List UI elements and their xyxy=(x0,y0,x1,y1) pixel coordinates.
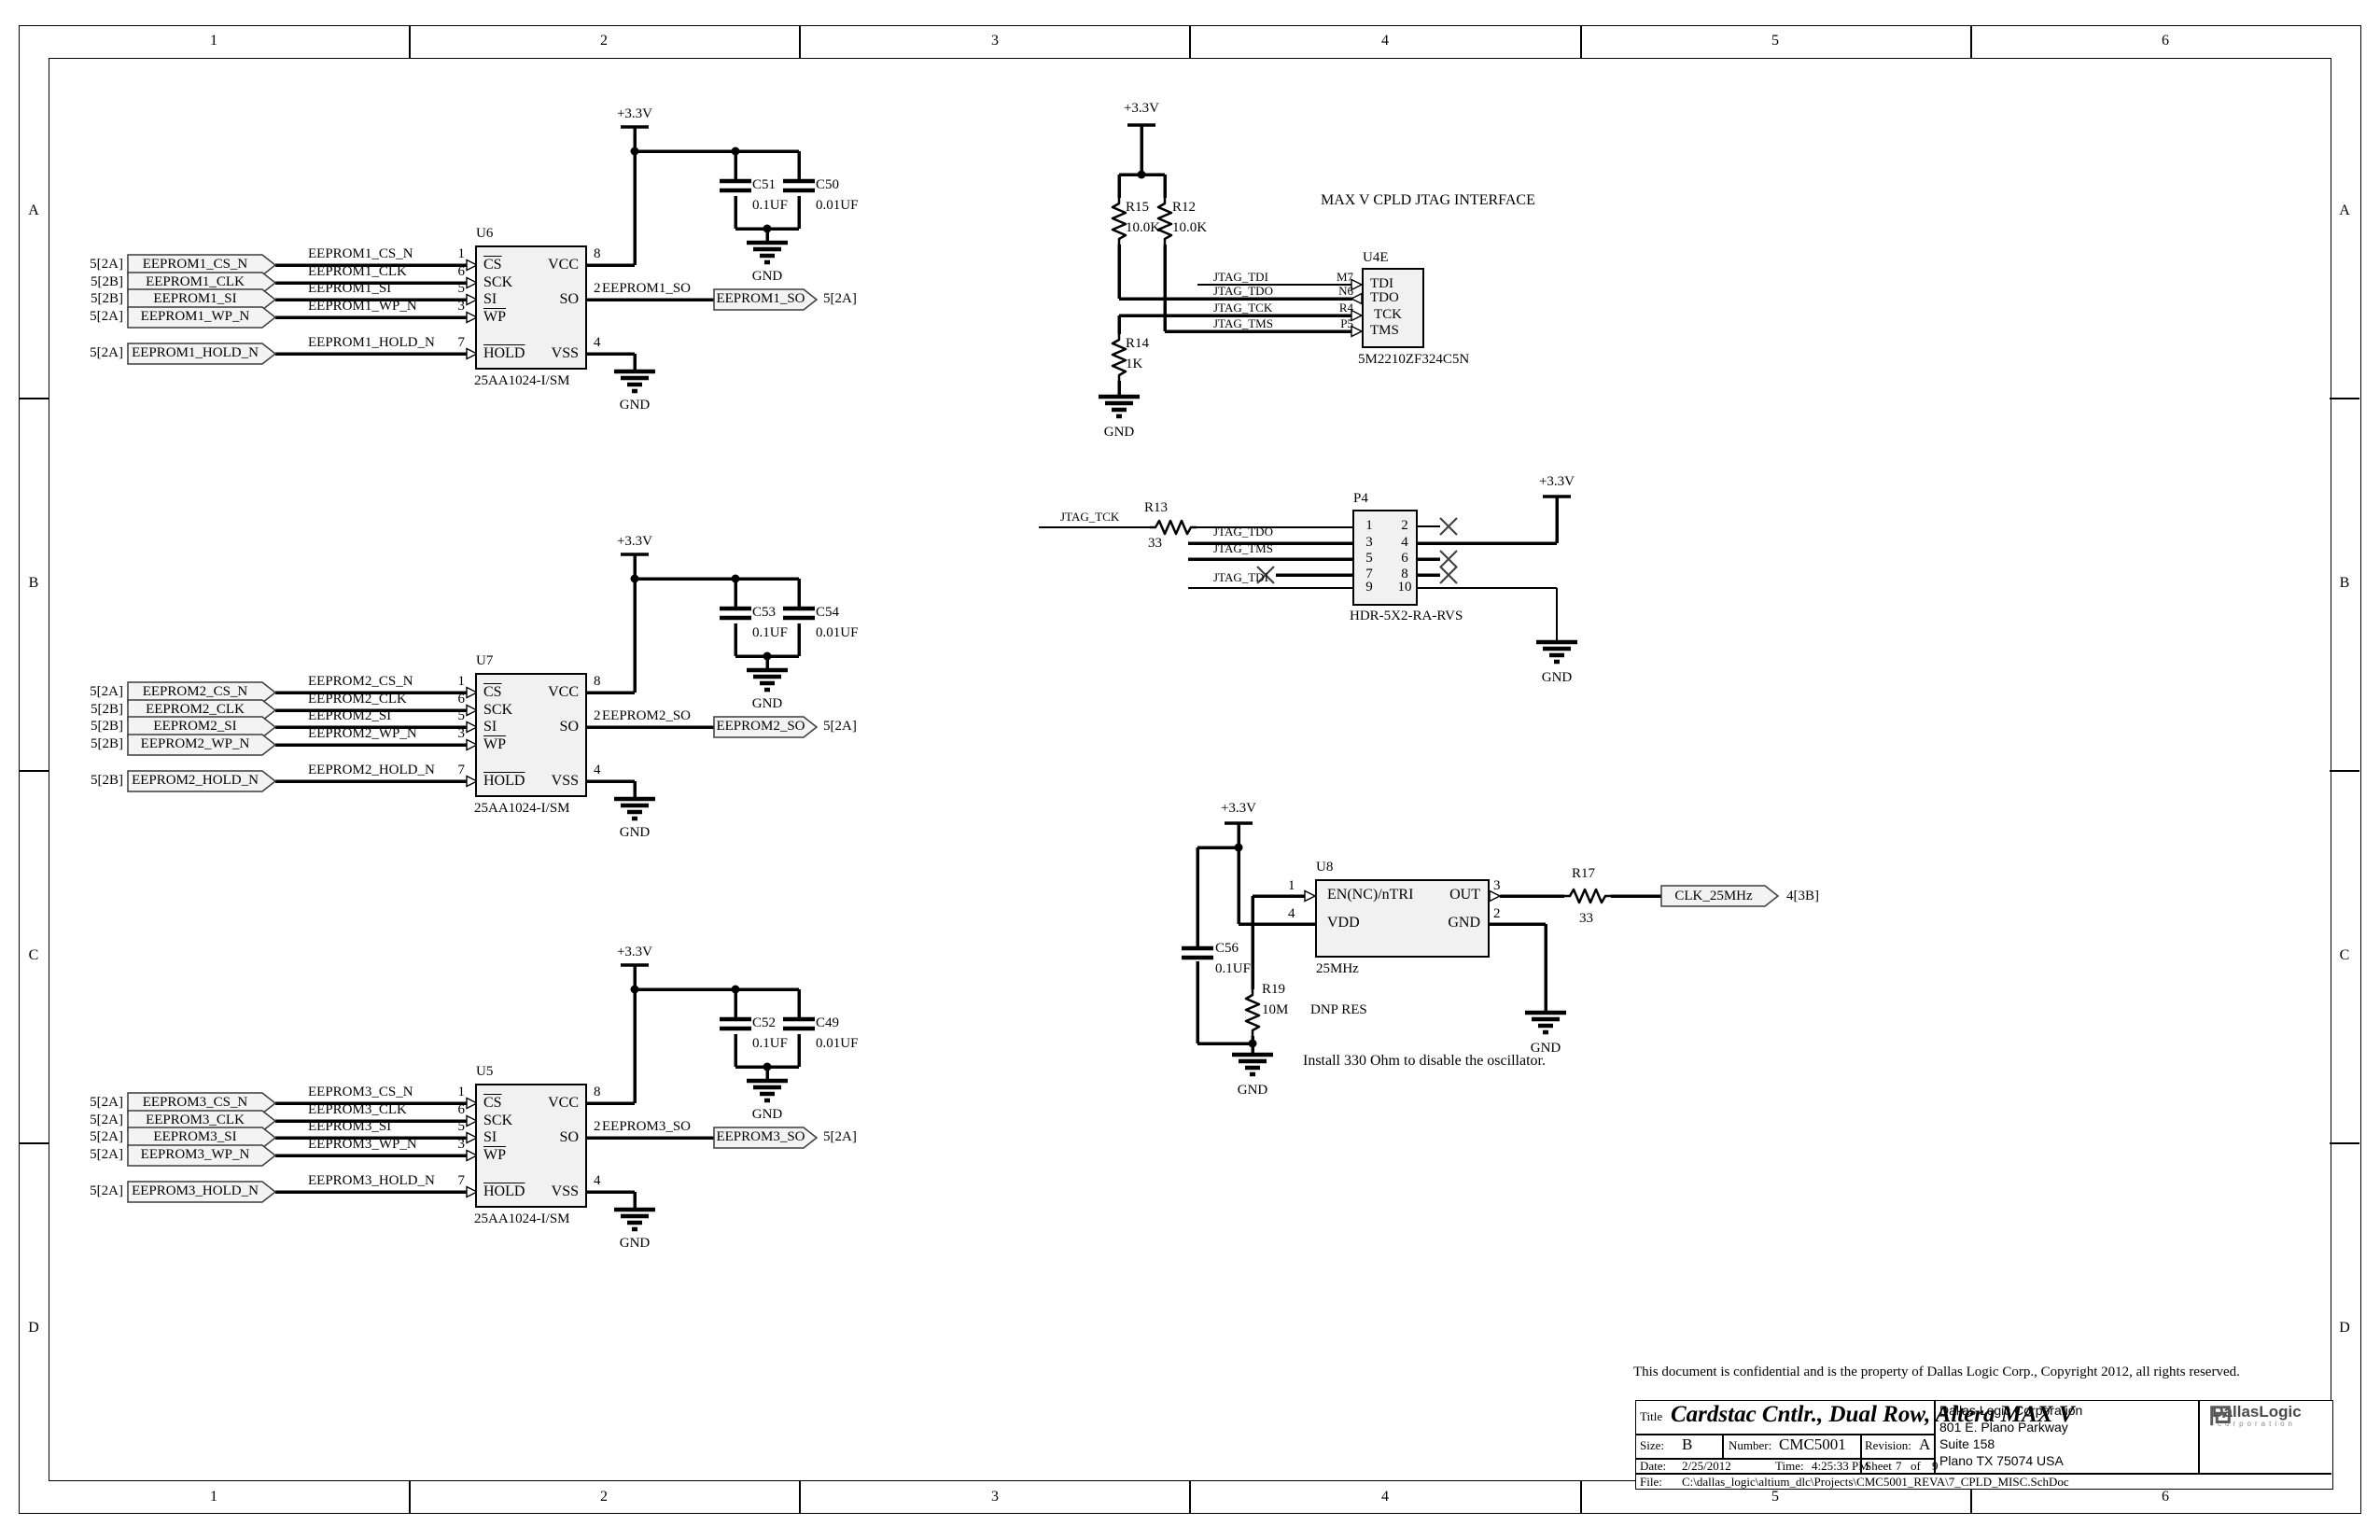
pin-number: 8 xyxy=(594,674,601,690)
port-label[interactable]: EEPROM3_SI xyxy=(130,1129,260,1145)
pin-number: 2 xyxy=(1493,906,1501,922)
pin-name: GND xyxy=(1432,915,1480,931)
pin-number: 3 xyxy=(439,299,465,315)
part-number: 25MHz xyxy=(1316,961,1359,977)
pin-number: 9 xyxy=(1359,580,1379,595)
pin-name: CS xyxy=(483,684,502,701)
net-label: JTAG_TDO xyxy=(1213,525,1273,539)
revision-value: A xyxy=(1919,1435,1930,1453)
pin-number: 6 xyxy=(439,1102,465,1118)
pin-number: P5 xyxy=(1314,316,1353,330)
designator: U4E xyxy=(1363,250,1389,266)
port-ref: 5[2A] xyxy=(823,1129,857,1145)
pin-name: WP xyxy=(483,736,506,753)
res-value: 10M xyxy=(1262,1002,1288,1018)
border-row-label: D xyxy=(19,1320,49,1337)
pin-name: TDO xyxy=(1370,290,1399,306)
port-label[interactable]: EEPROM3_CLK xyxy=(130,1113,260,1128)
dnp-note: DNP RES xyxy=(1310,1002,1367,1018)
net-label: EEPROM1_HOLD_N xyxy=(308,335,435,351)
pin-number: 8 xyxy=(594,246,601,262)
net-label: EEPROM2_CS_N xyxy=(308,674,413,690)
pin-name: VSS xyxy=(530,345,579,362)
border-tick xyxy=(19,1142,49,1144)
res-ref: R13 xyxy=(1144,500,1168,516)
pin-name: HOLD xyxy=(483,773,525,790)
cap-ref: C54 xyxy=(816,605,839,621)
port-label[interactable]: EEPROM2_HOLD_N xyxy=(130,773,260,789)
res-ref: R17 xyxy=(1572,866,1595,882)
border-row-label: D xyxy=(2330,1320,2359,1337)
time-value: 4:25:33 PM xyxy=(1812,1459,1869,1473)
gnd-label: GND xyxy=(739,269,795,285)
pin-number: 5 xyxy=(439,281,465,297)
net-label: JTAG_TMS xyxy=(1213,541,1273,555)
net-label: EEPROM2_WP_N xyxy=(308,726,417,742)
port-label[interactable]: EEPROM1_CLK xyxy=(130,274,260,290)
pin-name: SI xyxy=(483,719,497,735)
border-col-label: 3 xyxy=(800,1489,1190,1505)
pin-name: CS xyxy=(483,257,502,273)
pin-name: VSS xyxy=(530,1183,579,1200)
pin-number: 8 xyxy=(594,1085,601,1100)
power-label: +3.3V xyxy=(607,945,663,960)
designator: U8 xyxy=(1316,860,1333,875)
pin-name: SCK xyxy=(483,1113,512,1129)
pin-number: 7 xyxy=(439,763,465,778)
number-value: CMC5001 xyxy=(1779,1435,1846,1453)
designator: P4 xyxy=(1353,491,1368,507)
border-row-label: A xyxy=(2330,203,2359,219)
company-address: Suite 158 xyxy=(1939,1436,1995,1451)
designator: U5 xyxy=(476,1064,493,1080)
net-label: EEPROM3_HOLD_N xyxy=(308,1173,435,1189)
oscillator-note: Install 330 Ohm to disable the oscillato… xyxy=(1303,1053,1546,1070)
gnd-label: GND xyxy=(739,696,795,712)
pin-number: 2 xyxy=(594,281,601,297)
port-label[interactable]: EEPROM2_SO xyxy=(716,719,805,735)
pin-number: 5 xyxy=(439,708,465,724)
pin-number: 4 xyxy=(1288,906,1295,922)
copyright-text: This document is confidential and is the… xyxy=(1633,1365,2240,1380)
port-label[interactable]: CLK_25MHz xyxy=(1663,889,1764,904)
net-label: EEPROM1_WP_N xyxy=(308,299,417,315)
res-value: 33 xyxy=(1148,536,1162,552)
port-label[interactable]: EEPROM3_WP_N xyxy=(130,1147,260,1163)
border-col-label: 5 xyxy=(1580,1489,1970,1505)
pin-name: VSS xyxy=(530,773,579,790)
gnd-label: GND xyxy=(739,1107,795,1123)
number-label: Number: xyxy=(1729,1438,1771,1452)
border-tick xyxy=(2330,1142,2359,1144)
port-label[interactable]: EEPROM1_WP_N xyxy=(130,309,260,325)
company-address: 801 E. Plano Parkway xyxy=(1939,1420,2068,1435)
pin-number: 6 xyxy=(439,264,465,280)
port-ref: 5[2A] xyxy=(86,345,123,361)
border-col-label: 3 xyxy=(800,33,1190,49)
border-tick xyxy=(19,770,49,772)
title-block-line xyxy=(1722,1434,1724,1458)
title-label: Title xyxy=(1640,1409,1662,1423)
gnd-label: GND xyxy=(607,1236,663,1252)
pin-number: 3 xyxy=(439,1137,465,1153)
company-name: Dallas Logic Corporation xyxy=(1939,1403,2082,1418)
schematic-sheet: 1 2 3 4 5 6 1 2 3 4 5 6 A B C D A B C D … xyxy=(0,0,2380,1540)
border-row-label: C xyxy=(19,947,49,964)
net-label: EEPROM1_SI xyxy=(308,281,391,297)
border-col-label: 4 xyxy=(1190,33,1580,49)
sheet-of: of xyxy=(1911,1459,1921,1473)
section-title: MAX V CPLD JTAG INTERFACE xyxy=(1321,192,1535,209)
cap-value: 0.1UF xyxy=(752,198,788,214)
port-ref: 5[2B] xyxy=(86,736,123,752)
port-label[interactable]: EEPROM3_CS_N xyxy=(130,1095,260,1111)
pin-number: 2 xyxy=(594,708,601,724)
pin-name: SO xyxy=(530,719,579,735)
pin-name: WP xyxy=(483,1147,506,1164)
file-path: C:\dallas_logic\altium_dlc\Projects\CMC5… xyxy=(1682,1475,2069,1489)
port-label[interactable]: EEPROM2_SI xyxy=(130,719,260,735)
pin-number: 4 xyxy=(594,763,601,778)
pin-number: 5 xyxy=(439,1119,465,1135)
pin-number: 1 xyxy=(439,246,465,262)
cap-ref: C53 xyxy=(752,605,776,621)
pin-number: 7 xyxy=(439,335,465,351)
power-label: +3.3V xyxy=(1113,101,1169,117)
pin-number: 1 xyxy=(1288,878,1295,894)
gnd-label: GND xyxy=(1225,1083,1281,1099)
sheet-total: 9 xyxy=(1932,1459,1939,1473)
pin-name: SCK xyxy=(483,274,512,291)
port-ref: 5[2B] xyxy=(86,291,123,307)
port-label[interactable]: EEPROM3_SO xyxy=(716,1129,805,1145)
pin-number: 10 xyxy=(1393,580,1417,595)
res-value: 33 xyxy=(1579,911,1593,927)
res-ref: R12 xyxy=(1172,200,1196,216)
pin-number: R4 xyxy=(1314,301,1353,315)
time-label: Time: xyxy=(1775,1459,1804,1473)
date-value: 2/25/2012 xyxy=(1682,1459,1731,1473)
res-value: 10.0K xyxy=(1172,220,1207,236)
pin-name: VCC xyxy=(530,684,579,701)
size-label: Size: xyxy=(1640,1438,1664,1452)
pin-name: VCC xyxy=(530,257,579,273)
res-ref: R19 xyxy=(1262,982,1285,998)
port-ref: 5[2A] xyxy=(823,291,857,307)
pin-number: 3 xyxy=(1493,878,1501,894)
border-col-label: 6 xyxy=(1970,33,2360,49)
power-label: +3.3V xyxy=(607,106,663,122)
port-ref: 5[2A] xyxy=(823,719,857,735)
pin-number: N6 xyxy=(1314,284,1353,298)
gnd-label: GND xyxy=(1529,670,1585,686)
pin-number: 2 xyxy=(594,1119,601,1135)
net-label: JTAG_TDI xyxy=(1213,270,1268,284)
pin-number: 4 xyxy=(594,1173,601,1189)
port-ref: 5[2A] xyxy=(86,257,123,273)
pin-number: 1 xyxy=(439,674,465,690)
border-row-label: B xyxy=(2330,575,2359,592)
file-label: File: xyxy=(1640,1475,1662,1489)
sheet-label: Sheet xyxy=(1865,1459,1892,1473)
net-label: EEPROM3_CLK xyxy=(308,1102,407,1118)
port-ref: 5[2A] xyxy=(86,684,123,700)
cap-ref: C56 xyxy=(1215,941,1239,957)
gnd-label: GND xyxy=(607,825,663,841)
pin-name: SO xyxy=(530,291,579,308)
port-label[interactable]: EEPROM1_SO xyxy=(716,291,805,307)
net-label: JTAG_TDI xyxy=(1213,570,1268,584)
pin-name: WP xyxy=(483,309,506,326)
pin-number: 6 xyxy=(1393,551,1417,567)
res-ref: R15 xyxy=(1126,200,1149,216)
border-tick xyxy=(2330,770,2359,772)
net-label: EEPROM3_SO xyxy=(602,1119,691,1135)
border-col-label: 4 xyxy=(1190,1489,1580,1505)
net-label: EEPROM3_SI xyxy=(308,1119,391,1135)
border-tick xyxy=(19,398,49,399)
pin-number: 1 xyxy=(1359,518,1379,534)
gnd-label: GND xyxy=(1091,425,1147,441)
pin-name: VDD xyxy=(1327,915,1360,931)
port-ref: 5[2A] xyxy=(86,1113,123,1128)
dallas-logic-logo-icon xyxy=(2208,1404,2233,1428)
pin-number: 4 xyxy=(1393,535,1417,551)
cap-ref: C49 xyxy=(816,1015,839,1031)
cap-value: 0.1UF xyxy=(1215,961,1251,977)
pin-number: M7 xyxy=(1314,270,1353,284)
port-label[interactable]: EEPROM1_SI xyxy=(130,291,260,307)
pin-name: SCK xyxy=(483,702,512,719)
pin-name: VCC xyxy=(530,1095,579,1112)
border-col-label: 2 xyxy=(409,33,799,49)
port-label[interactable]: EEPROM1_HOLD_N xyxy=(130,345,260,361)
port-ref: 4[3B] xyxy=(1786,889,1819,904)
pin-name: CS xyxy=(483,1095,502,1112)
net-label: EEPROM1_CLK xyxy=(308,264,407,280)
pin-number: 4 xyxy=(594,335,601,351)
pin-number: 5 xyxy=(1359,551,1379,567)
pin-number: 3 xyxy=(1359,535,1379,551)
revision-label: Revision: xyxy=(1865,1438,1911,1452)
border-col-label: 6 xyxy=(1970,1489,2360,1505)
part-number: 5M2210ZF324C5N xyxy=(1358,352,1469,368)
net-label: EEPROM2_CLK xyxy=(308,692,407,707)
cap-value: 0.01UF xyxy=(816,625,858,641)
pin-name: SI xyxy=(483,291,497,308)
border-col-label: 2 xyxy=(409,1489,799,1505)
power-label: +3.3V xyxy=(1211,801,1267,817)
port-ref: 5[2B] xyxy=(86,702,123,718)
net-label: JTAG_TCK xyxy=(1213,301,1272,315)
net-label: JTAG_TDO xyxy=(1213,284,1273,298)
res-value: 10.0K xyxy=(1126,220,1160,236)
port-ref: 5[2A] xyxy=(86,1095,123,1111)
res-ref: R14 xyxy=(1126,336,1149,352)
date-label: Date: xyxy=(1640,1459,1666,1473)
port-ref: 5[2A] xyxy=(86,1129,123,1145)
cap-ref: C52 xyxy=(752,1015,776,1031)
port-label[interactable]: EEPROM3_HOLD_N xyxy=(130,1183,260,1199)
net-label: EEPROM1_CS_N xyxy=(308,246,413,262)
pin-number: 7 xyxy=(439,1173,465,1189)
border-row-label: C xyxy=(2330,947,2359,964)
border-col-label: 1 xyxy=(19,33,409,49)
border-row-label: B xyxy=(19,575,49,592)
pin-name: SO xyxy=(530,1129,579,1146)
pin-name: TCK xyxy=(1374,307,1402,323)
border-tick xyxy=(2330,398,2359,399)
pin-name: TMS xyxy=(1370,323,1399,339)
cap-value: 0.01UF xyxy=(816,198,858,214)
gnd-label: GND xyxy=(607,398,663,413)
power-label: +3.3V xyxy=(607,534,663,550)
pin-number: 1 xyxy=(439,1085,465,1100)
port-ref: 5[2A] xyxy=(86,1183,123,1199)
port-ref: 5[2A] xyxy=(86,309,123,325)
port-ref: 5[2B] xyxy=(86,719,123,735)
border-row-label: A xyxy=(19,203,49,219)
pin-number: 2 xyxy=(1393,518,1417,534)
title-block-line xyxy=(2198,1400,2200,1473)
part-number: HDR-5X2-RA-RVS xyxy=(1350,609,1463,624)
port-ref: 5[2B] xyxy=(86,274,123,290)
net-label: EEPROM3_CS_N xyxy=(308,1085,413,1100)
pin-name: HOLD xyxy=(483,1183,525,1200)
cap-value: 0.01UF xyxy=(816,1036,858,1052)
designator: U7 xyxy=(476,653,493,669)
cap-value: 0.1UF xyxy=(752,625,788,641)
port-ref: 5[2B] xyxy=(86,773,123,789)
net-label: JTAG_TCK xyxy=(1060,510,1119,524)
net-label: EEPROM2_SI xyxy=(308,708,391,724)
border-col-label: 5 xyxy=(1580,33,1970,49)
power-label: +3.3V xyxy=(1529,474,1585,490)
pin-name: OUT xyxy=(1432,887,1480,903)
net-label: EEPROM2_SO xyxy=(602,708,691,724)
cap-ref: C50 xyxy=(816,177,839,193)
pin-number: 6 xyxy=(439,692,465,707)
cap-ref: C51 xyxy=(752,177,776,193)
part-number: 25AA1024-I/SM xyxy=(474,373,570,389)
net-label: JTAG_TMS xyxy=(1213,316,1273,330)
res-value: 1K xyxy=(1126,357,1142,372)
port-label[interactable]: EEPROM2_WP_N xyxy=(130,736,260,752)
pin-name: HOLD xyxy=(483,345,525,362)
part-number: 25AA1024-I/SM xyxy=(474,1211,570,1227)
cap-value: 0.1UF xyxy=(752,1036,788,1052)
pin-name: SI xyxy=(483,1129,497,1146)
port-label[interactable]: EEPROM2_CS_N xyxy=(130,684,260,700)
border-col-label: 1 xyxy=(19,1489,409,1505)
port-label[interactable]: EEPROM2_CLK xyxy=(130,702,260,718)
size-value: B xyxy=(1682,1435,1692,1453)
pin-number: 3 xyxy=(439,726,465,742)
company-address: Plano TX 75074 USA xyxy=(1939,1453,2064,1468)
port-label[interactable]: EEPROM1_CS_N xyxy=(130,257,260,273)
pin-name: EN(NC)/nTRI xyxy=(1327,887,1413,903)
company-logo: DallasLogic corporation xyxy=(2208,1404,2305,1465)
port-ref: 5[2A] xyxy=(86,1147,123,1163)
net-label: EEPROM2_HOLD_N xyxy=(308,763,435,778)
net-label: EEPROM3_WP_N xyxy=(308,1137,417,1153)
designator: U6 xyxy=(476,226,493,242)
sheet-number: 7 xyxy=(1896,1459,1902,1473)
part-number: 25AA1024-I/SM xyxy=(474,801,570,817)
net-label: EEPROM1_SO xyxy=(602,281,691,297)
